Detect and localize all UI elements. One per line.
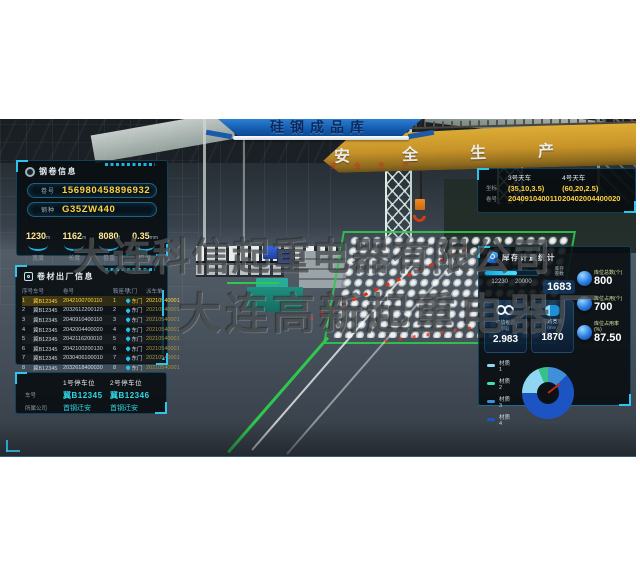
- scroll-arrow-icon[interactable]: ▲: [161, 356, 166, 362]
- col-truck: 车号: [33, 287, 63, 295]
- stats-title: 库存计量统计: [502, 252, 556, 263]
- plate-label: 车号: [25, 391, 63, 399]
- crane-status-panel: 3号天车 4号天车 坐标 (35,10,3.5) (60,20,2.5) 卷号 …: [477, 168, 636, 213]
- stat-unit: m: [82, 235, 86, 241]
- inventory-count-value: 1683: [543, 280, 575, 294]
- map-pin-icon: [125, 337, 130, 342]
- legend-item: 材质4: [487, 413, 513, 427]
- cell-saddle: 7: [113, 355, 126, 361]
- cell-saddle: 5: [113, 336, 126, 342]
- cylinder-icon: [545, 305, 560, 316]
- cell-seq: 6: [22, 346, 33, 352]
- hud-corner-accent: [6, 450, 20, 452]
- cell-truck: 冀B12345: [33, 345, 63, 353]
- cell-saddle: 8: [113, 365, 126, 371]
- coord-label: 坐标: [486, 184, 508, 192]
- inventory-count: 库存 卷数 1683: [543, 266, 575, 295]
- stat-label: 宽度: [26, 253, 50, 262]
- material-chart-block: 材质1 材质2 材质3 材质4: [484, 359, 574, 427]
- progress-current: 12230: [491, 279, 508, 285]
- cell-truck: 冀B12345: [33, 326, 63, 334]
- table-row[interactable]: 6 冀B12345 2042100200130 6 东门 20210540001: [22, 344, 162, 354]
- stat-arc-decoration: [135, 245, 155, 251]
- legend-label: 材质4: [499, 413, 513, 427]
- field-label: 卷号: [41, 186, 55, 195]
- banner-underline: [233, 136, 409, 140]
- inventory-block: 12230 20000 库存 卷数 1683: [484, 266, 574, 295]
- cell-coil: 2042100700110: [63, 298, 113, 304]
- panel-dash-decoration: [105, 163, 155, 166]
- legend-label: 材质3: [499, 395, 513, 409]
- shipping-table: 序号 车号 卷号 鞍座号 大门 派车单 1 冀B12345 2042100700…: [16, 284, 167, 374]
- card-unit: (吨): [502, 326, 510, 332]
- truck-cab: [263, 246, 279, 259]
- cell-saddle: 4: [113, 327, 126, 333]
- stat-arc-decoration: [28, 245, 48, 251]
- cell-truck: 冀B12345: [33, 306, 63, 314]
- cell-saddle: 1: [113, 298, 126, 304]
- chart-legend: 材质1 材质2 材质3 材质4: [484, 359, 513, 427]
- coil-rings-icon: [496, 305, 515, 317]
- cell-saddle: 6: [113, 346, 126, 352]
- girder-slogan-text-red: 安全生产: [330, 161, 450, 171]
- company-label: 所属公司: [25, 404, 63, 412]
- table-header-row: 序号 车号 卷号 鞍座号 大门 派车单: [22, 286, 162, 296]
- coil-stat: 1230m 宽度: [26, 226, 50, 262]
- kpi-sphere-icon: [577, 325, 592, 340]
- stats-left-zone: 12230 20000 库存 卷数 1683 平均卷重 (吨): [484, 266, 574, 427]
- table-scrollbar[interactable]: [162, 290, 164, 354]
- map-pin-icon: [125, 346, 130, 351]
- field-label: 钢种: [41, 205, 55, 214]
- cell-coil: 2042004400020: [63, 327, 113, 333]
- stat-arc-decoration: [64, 245, 84, 251]
- donut-chart: [522, 367, 574, 419]
- stat-value: 8080: [98, 231, 118, 241]
- crane3-title: 3号天车: [508, 172, 562, 182]
- coil-stat: 1162m 长度: [62, 226, 86, 262]
- crane3-coord: (35,10,3.5): [508, 184, 562, 193]
- foreground-shadow: [0, 422, 636, 456]
- cell-order: 20210540001: [146, 355, 180, 361]
- cell-gate: 东门: [126, 326, 146, 334]
- shipping-rows: 1 冀B12345 2042100700110 1 东门 20210540001…: [22, 296, 162, 373]
- cell-truck: 冀B12345: [33, 316, 63, 324]
- truck-body: [277, 249, 293, 265]
- spot2-plate: 冀B12346: [110, 390, 157, 401]
- spot1-plate: 冀B12345: [63, 390, 110, 401]
- cell-coil: 2042116200010: [63, 336, 113, 342]
- kpi-item: 库位总数(个) 800: [577, 269, 626, 288]
- stat-label: 厚度: [132, 253, 158, 262]
- stat-arc-decoration: [99, 245, 119, 251]
- col-seq: 序号: [22, 287, 33, 295]
- spot2-company: 首钢迁安: [110, 403, 157, 413]
- cell-coil: 2032618400030: [63, 365, 113, 371]
- field-value: 156980458896932: [62, 185, 150, 196]
- stats-icon: [487, 252, 498, 263]
- warehouse-title: 硅钢成品库: [218, 119, 422, 137]
- stat-unit: mm: [150, 235, 158, 241]
- spot1-company: 首钢迁安: [63, 403, 110, 413]
- table-row[interactable]: 5 冀B12345 2042116200010 5 东门 20210540001: [22, 334, 162, 344]
- teal-machine: [247, 287, 303, 312]
- progress-max: 20000: [515, 279, 532, 285]
- cell-truck: 冀B12345: [33, 297, 63, 305]
- stats-body: 12230 20000 库存 卷数 1683 平均卷重 (吨): [479, 264, 630, 427]
- crane-hook-icon: [410, 206, 428, 224]
- inventory-stats-panel: 库存计量统计 12230 20000 库存 卷数: [478, 246, 631, 406]
- cell-gate: 东门: [126, 297, 146, 305]
- document-icon: [24, 272, 33, 281]
- map-pin-icon: [125, 298, 130, 303]
- crane3-coil: 2040910400110: [508, 194, 562, 203]
- kpi-item: 库位占用(个) 700: [577, 295, 626, 314]
- table-row[interactable]: 4 冀B12345 2042004400020 4 东门 20210540001: [22, 325, 162, 335]
- coil-ring-icon: [25, 167, 35, 177]
- crane4-title: 4号天车: [562, 172, 627, 182]
- cell-gate: 东门: [126, 354, 146, 362]
- coil-info-panel: 钢卷信息 卷号 156980458896932 钢种 G35ZW440 1230…: [16, 160, 168, 256]
- progress-track: [484, 270, 539, 276]
- cell-coil: 2032612200120: [63, 307, 113, 313]
- field-value: G35ZW440: [62, 204, 115, 215]
- coil-fields: 卷号 156980458896932 钢种 G35ZW440: [17, 183, 167, 217]
- cell-truck: 冀B12345: [33, 335, 63, 343]
- cell-seq: 8: [22, 365, 33, 371]
- cell-seq: 7: [22, 355, 33, 361]
- crane-hook-cable: [420, 171, 422, 201]
- legend-label: 材质1: [499, 359, 513, 373]
- table-row[interactable]: 3 冀B12345 2040910400110 3 东门 20210540001: [22, 315, 162, 325]
- cell-coil: 2040910400110: [63, 317, 113, 323]
- col-order: 派车单: [146, 287, 163, 295]
- card-unit: (mm): [547, 325, 558, 330]
- coil-field-pill: 卷号 156980458896932: [27, 183, 157, 198]
- cell-seq: 5: [22, 336, 33, 342]
- legend-label: 材质2: [499, 377, 513, 391]
- cell-truck: 冀B12345: [33, 354, 63, 362]
- card-label: 平均卷重: [495, 319, 515, 326]
- inventory-progress-fill: [485, 271, 517, 275]
- stat-value: 1230: [26, 231, 46, 241]
- legend-swatch: [487, 400, 495, 403]
- coil-field-pill: 钢种 G35ZW440: [27, 202, 157, 217]
- coil-stat: 8080t 卷重: [98, 226, 119, 262]
- coil-label: 卷号: [486, 195, 508, 203]
- card-value: 1870: [541, 332, 563, 343]
- cell-coil: 2030406100010: [63, 355, 113, 361]
- map-pin-icon: [125, 356, 130, 361]
- stat-unit: m: [46, 235, 50, 241]
- cell-gate: 东门: [126, 306, 146, 314]
- kpi-value: 800: [594, 276, 626, 288]
- card-label: 平均宽度: [542, 318, 562, 325]
- support-pole: [243, 123, 245, 243]
- stat-value: 0.35: [132, 231, 150, 241]
- map-pin-icon: [125, 308, 130, 313]
- map-pin-icon: [125, 365, 130, 370]
- cell-gate: 东门: [126, 345, 146, 353]
- col-coil: 卷号: [63, 287, 113, 295]
- col-saddle: 鞍座号: [113, 287, 126, 295]
- kpi-sphere-icon: [577, 271, 592, 286]
- avg-width-card: 平均宽度 (mm) 1870: [531, 300, 574, 353]
- table-row[interactable]: 7 冀B12345 2030406100010 7 东门 20210540001: [22, 354, 162, 364]
- legend-swatch: [487, 418, 495, 421]
- legend-swatch: [487, 382, 495, 385]
- legend-item: 材质3: [487, 395, 513, 409]
- crane4-coord: (60,20,2.5): [562, 184, 627, 193]
- kpi-value: 87.50: [594, 333, 626, 345]
- cell-seq: 3: [22, 317, 33, 323]
- map-pin-icon: [125, 318, 130, 323]
- kpi-item: 库位占用率(%) 87.50: [577, 320, 626, 345]
- table-row[interactable]: 2 冀B12345 2032612200120 2 东门 20210540001: [22, 306, 162, 316]
- cell-gate: 东门: [126, 335, 146, 343]
- support-pole: [203, 119, 206, 257]
- green-lane-line: [227, 282, 279, 284]
- stat-label: 卷重: [98, 253, 119, 262]
- avg-weight-card: 平均卷重 (吨) 2.983: [484, 300, 527, 353]
- coil-dimension-stats: 1230m 宽度 1162m 长度 8080t 卷重 0.35mm 厚度: [17, 217, 167, 262]
- legend-item: 材质1: [487, 359, 513, 373]
- stat-value: 1162: [62, 231, 82, 241]
- stat-label: 长度: [62, 253, 86, 262]
- inventory-progress: 12230 20000: [484, 266, 539, 285]
- col-gate: 大门: [126, 287, 146, 295]
- shipping-title: 卷材出厂信息: [37, 271, 94, 282]
- crane4-coil: 20402004400020: [562, 194, 627, 203]
- cell-truck: 冀B12345: [33, 364, 63, 372]
- legend-swatch: [487, 364, 495, 367]
- parking-panel: 1号停车位 2号停车位 车号 冀B12345 冀B12346 所属公司 首钢迁安…: [15, 372, 167, 414]
- cell-saddle: 3: [113, 317, 126, 323]
- spot1-title: 1号停车位: [63, 377, 110, 387]
- legend-item: 材质2: [487, 377, 513, 391]
- panel-dash-decoration: [105, 268, 155, 271]
- map-pin-icon: [125, 327, 130, 332]
- progress-range: 12230 20000: [484, 279, 539, 285]
- kpi-value: 700: [594, 302, 626, 314]
- cell-gate: 东门: [126, 316, 146, 324]
- parking-grid: 1号停车位 2号停车位 车号 冀B12345 冀B12346 所属公司 首钢迁安…: [16, 373, 166, 415]
- kpi-column: 库位总数(个) 800 库位占用(个) 700 库位占用率(%) 87.50: [577, 266, 626, 427]
- stat-unit: t: [118, 235, 119, 241]
- inventory-count-label: 库存 卷数: [543, 266, 575, 277]
- cell-seq: 4: [22, 327, 33, 333]
- shelf-boxes-row: [196, 265, 284, 277]
- coil-info-title: 钢卷信息: [39, 166, 77, 177]
- kpi-sphere-icon: [577, 296, 592, 311]
- coil-stat: 0.35mm 厚度: [132, 226, 158, 262]
- hud-corner-accent: [6, 440, 8, 452]
- cell-order: 20210540001: [146, 365, 180, 371]
- cell-gate: 东门: [126, 364, 146, 372]
- cell-seq: 1: [22, 298, 33, 304]
- shipping-table-panel: 卷材出厂信息 序号 车号 卷号 鞍座号 大门 派车单 1 冀B12345 204…: [15, 265, 168, 365]
- card-value: 2.983: [493, 334, 518, 345]
- spot2-title: 2号停车位: [110, 377, 157, 387]
- stats-header: 库存计量统计: [479, 247, 630, 264]
- crane-grid: 3号天车 4号天车 坐标 (35,10,3.5) (60,20,2.5) 卷号 …: [478, 169, 635, 205]
- cell-seq: 2: [22, 307, 33, 313]
- average-cards: 平均卷重 (吨) 2.983 平均宽度 (mm) 1870: [484, 300, 574, 353]
- cell-coil: 2042100200130: [63, 346, 113, 352]
- table-row[interactable]: 1 冀B12345 2042100700110 1 东门 20210540001: [22, 296, 162, 306]
- cell-saddle: 2: [113, 307, 126, 313]
